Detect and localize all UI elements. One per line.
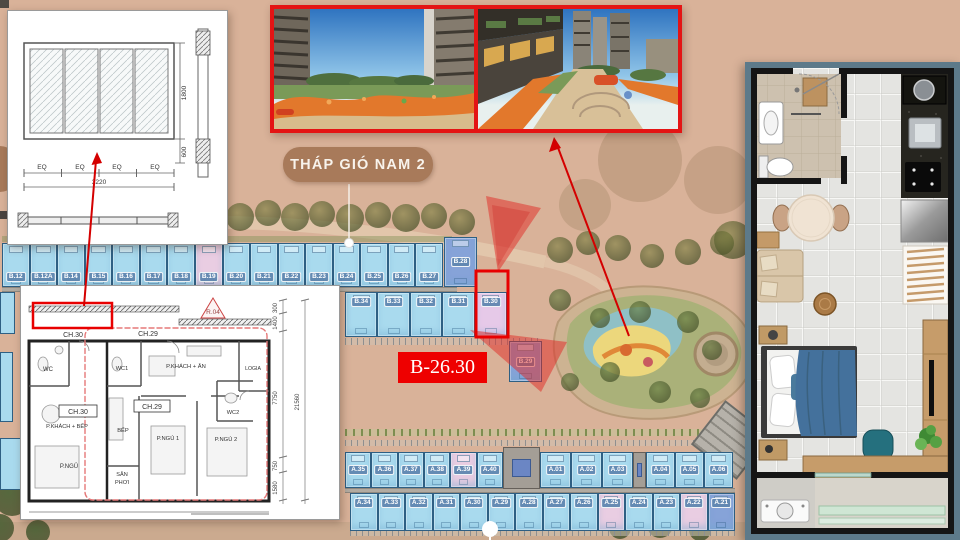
site-unit-A.25: A.25 [598,493,626,531]
site-unit-A.38: A.38 [424,452,450,488]
view-photos-frame [270,5,682,133]
site-unit-A.30: A.30 [460,493,488,531]
unit-label: A.21 [711,498,731,508]
shoe-rack [903,246,948,304]
room-bed2: P.NGỦ 2 [215,436,237,443]
unit-label: A.37 [401,465,421,475]
unit-label: A.33 [381,498,401,508]
tree-icon [549,289,571,311]
tree-icon [547,237,573,263]
planter [819,518,945,524]
unit-label: A.24 [629,498,649,508]
unit-label: A.04 [651,465,671,475]
unit-label: B.29 [516,357,536,367]
room-phoi: PHƠI [115,480,130,486]
site-unit-A.29: A.29 [488,493,516,531]
site-unit-B.34: B.34 [345,292,377,337]
a-block-top-row-right: A.04A.05A.06 [646,452,733,488]
tree-icon [421,203,447,229]
tree-icon [561,373,579,391]
site-unit-B.21: B.21 [250,243,278,287]
round-stool [814,293,836,315]
tv [929,360,934,416]
tree-icon [255,200,281,226]
unit-code-label: B-26.30 [398,352,487,383]
unit-label: A.03 [608,465,628,475]
tree-icon [226,203,254,231]
unit-label: B.25 [364,272,384,282]
site-unit-A.35: A.35 [345,452,371,488]
unit-label: A.30 [464,498,484,508]
site-unit-A.28: A.28 [515,493,543,531]
unit-label: B.30 [481,297,501,307]
side-table [757,232,779,248]
unit-label: A.27 [546,498,566,508]
nightstand [759,440,787,460]
room-bed30: P.NGỦ [60,463,78,470]
unit-label: A.23 [656,498,676,508]
unit-label: A.39 [454,465,474,475]
site-unit-B.25: B.25 [360,243,388,287]
tower-name-text: THÁP GIÓ NAM 2 [290,157,426,173]
site-unit-A.32: A.32 [405,493,433,531]
parking-hatch [350,531,735,536]
site-unit-A.21: A.21 [708,493,736,531]
unit-label: A.02 [577,465,597,475]
site-unit-A.36: A.36 [371,452,397,488]
tree-icon [26,520,50,540]
dim-eq: EQ [37,164,46,171]
tree-icon [576,231,600,255]
dim-window-total: 3220 [92,179,107,186]
site-unit-B.14: B.14 [57,243,85,287]
site-unit-B.16: B.16 [112,243,140,287]
unit-label: A.22 [684,498,704,508]
apartment-floor-plan-drawing: R.04 CH.30 CH.29 WC CH.30 P.KHÁCH + BẾP … [20,285,340,520]
unit-code-text: B-26.30 [410,356,475,379]
unit-label: A.26 [574,498,594,508]
unit-label: B.20 [226,272,246,282]
ch30-title: CH.30 [63,332,83,339]
site-unit-B.33: B.33 [377,292,409,337]
site-unit-B.24: B.24 [333,243,361,287]
toilet [767,158,793,176]
tree-icon [365,202,391,228]
unit-label: A.38 [427,465,447,475]
room-wc1: WC1 [116,366,128,372]
room-wc2: WC2 [227,410,239,416]
site-unit-A.04: A.04 [646,452,675,488]
bed-blanket [796,350,858,436]
balcony-slider [815,473,871,477]
presentation-slide: B.12B.12AB.14B.15B.16B.17B.18B.19B.20B.2… [0,0,960,540]
site-unit-A.22: A.22 [680,493,708,531]
retail-walkway-panorama-photo [478,9,678,129]
dim-300: 300 [273,302,279,313]
edge-unit-fragment [0,292,15,334]
a-block-core-small [633,452,646,488]
site-unit-A.31: A.31 [433,493,461,531]
unit-label: A.06 [709,465,729,475]
tree-icon [675,239,701,265]
room-living30: P.KHÁCH + BẾP [46,423,88,430]
site-unit-A.39: A.39 [450,452,476,488]
unit-label: B.34 [351,297,371,307]
room-logia: LOGIA [245,366,261,372]
site-unit-B.17: B.17 [140,243,168,287]
tree-icon [449,209,475,235]
site-unit-B.28: B.28 [444,237,477,287]
steel-cabinet [901,200,948,242]
tree-icon [629,301,651,323]
unit-label: A.34 [354,498,374,508]
tree-icon [336,204,364,232]
unit-label: A.32 [409,498,429,508]
window-detail-drawing: 1800 600 EQ EQ EQ EQ 3220 [7,10,228,245]
unit-label: A.40 [480,465,500,475]
site-unit-B.15: B.15 [85,243,113,287]
tree-icon [677,311,699,333]
ch29-box-label: CH.29 [142,404,162,411]
site-unit-A.33: A.33 [378,493,406,531]
site-unit-B.26: B.26 [388,243,416,287]
unit-label: B.18 [171,272,191,282]
unit-label: B.22 [282,272,302,282]
unit-label: B.15 [89,272,109,282]
dim-1580: 1580 [273,481,279,495]
a-block-core [503,447,540,489]
site-unit-A.03: A.03 [602,452,633,488]
site-unit-A.27: A.27 [543,493,571,531]
dim-window-height: 1800 [181,85,188,100]
a-block-bottom-row: A.34A.33A.32A.31A.30A.29A.28A.27A.26A.25… [350,493,735,531]
edge-unit-fragment [0,352,13,422]
unit-label: B.12A [31,272,55,282]
dim-eq: EQ [150,164,159,171]
tree-icon [640,244,664,268]
unit-label: B.32 [416,297,436,307]
b-block-bottom-row: B.34B.33B.32B.31B.30 [345,292,507,337]
unit-label: B.12 [6,272,26,282]
room-wc: WC [43,367,54,373]
unit-label: B.19 [199,272,219,282]
ch30-box-label: CH.30 [68,409,88,416]
tree-icon [690,388,710,408]
room-living29: P.KHÁCH + ĂN [166,363,206,370]
site-unit-B.22: B.22 [278,243,306,287]
dim-21560: 21560 [295,393,301,410]
corner-shadow [0,0,9,8]
dim-eq: EQ [112,164,121,171]
room-kitchen: BẾP [117,427,129,434]
site-unit-B.23: B.23 [305,243,333,287]
dim-750: 750 [273,460,279,471]
site-unit-B.12: B.12 [2,243,30,287]
site-unit-A.40: A.40 [477,452,503,488]
unit-label: B.14 [61,272,81,282]
dim-eq: EQ [75,164,84,171]
room-bed1: P.NGỦ 1 [157,435,179,442]
site-unit-B.12A: B.12A [30,243,58,287]
hedge-strip [345,429,745,436]
tree-icon [392,204,420,232]
tree-icon [281,203,309,231]
unit-label: A.01 [546,465,566,475]
ch29-title: CH.29 [138,331,158,338]
tower-name-label: THÁP GIÓ NAM 2 [283,147,433,182]
room-san: SÂN [116,471,128,478]
unit-label: B.24 [337,272,357,282]
a-block-top-row-left: A.35A.36A.37A.38A.39A.40 [345,452,503,488]
dim-7750: 7750 [273,391,279,405]
site-unit-A.26: A.26 [570,493,598,531]
furnished-unit-plan-panel [745,62,960,540]
tree-icon [702,340,722,360]
unit-label: A.36 [375,465,395,475]
site-unit-A.01: A.01 [540,452,571,488]
a-block-top-row-mid: A.01A.02A.03 [540,452,633,488]
unit-label: B.17 [144,272,164,282]
unit-label: A.31 [436,498,456,508]
tree-icon [309,201,335,227]
unit-label: B.27 [419,272,439,282]
unit-label: B.28 [451,257,471,267]
tree-icon [649,381,671,403]
unit-label: B.21 [254,272,274,282]
unit-label: B.23 [309,272,329,282]
unit-label: B.16 [116,272,136,282]
site-unit-B.18: B.18 [167,243,195,287]
site-unit-A.02: A.02 [571,452,602,488]
site-unit-B.27: B.27 [415,243,443,287]
unit-label: A.35 [348,465,368,475]
unit-label: B.31 [449,297,469,307]
cooktop [905,162,941,192]
unit-label: B.26 [392,272,412,282]
dim-window-sill: 600 [181,146,188,157]
site-unit-B.31: B.31 [442,292,474,337]
planter [819,506,945,515]
unit-label: A.25 [601,498,621,508]
site-unit-B.32: B.32 [410,292,442,337]
dining-table [788,195,834,241]
risk-marker-label: R.04 [206,309,220,316]
tree-icon [590,308,610,328]
b-block-top-row: B.12B.12AB.14B.15B.16B.17B.18B.19B.20B.2… [2,243,443,287]
unit-label: B.33 [384,297,404,307]
tree-icon [600,362,620,382]
site-unit-B.20: B.20 [223,243,251,287]
tree-icon [605,235,631,261]
unit-label: A.29 [491,498,511,508]
site-unit-A.24: A.24 [625,493,653,531]
site-unit-B.19: B.19 [195,243,223,287]
site-unit-A.37: A.37 [398,452,424,488]
dim-1400: 1400 [273,316,279,330]
site-unit-B.30: B.30 [475,292,507,337]
site-unit-A.05: A.05 [675,452,704,488]
unit-label: A.05 [680,465,700,475]
site-unit-A.34: A.34 [350,493,378,531]
site-unit-A.06: A.06 [704,452,733,488]
site-unit-A.23: A.23 [653,493,681,531]
courtyard-panorama-photo [274,9,474,129]
unit-label: A.28 [519,498,539,508]
parking-hatch [345,440,745,446]
site-unit-B.29: B.29 [509,341,542,382]
